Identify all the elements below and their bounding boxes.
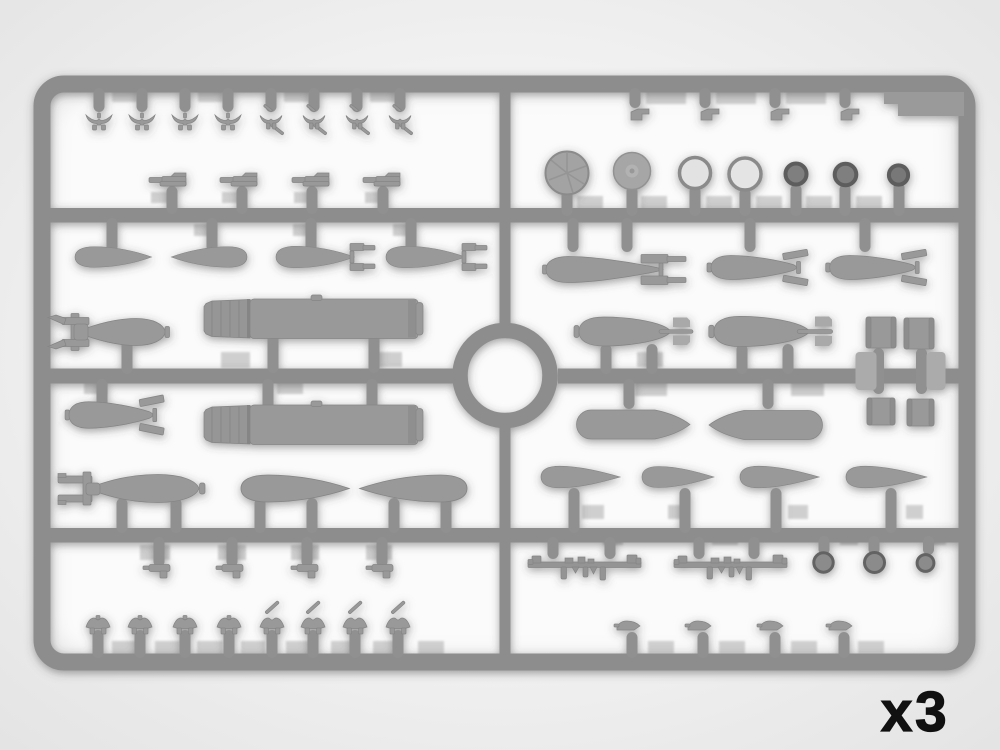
svg-text:x3: x3: [881, 680, 949, 744]
